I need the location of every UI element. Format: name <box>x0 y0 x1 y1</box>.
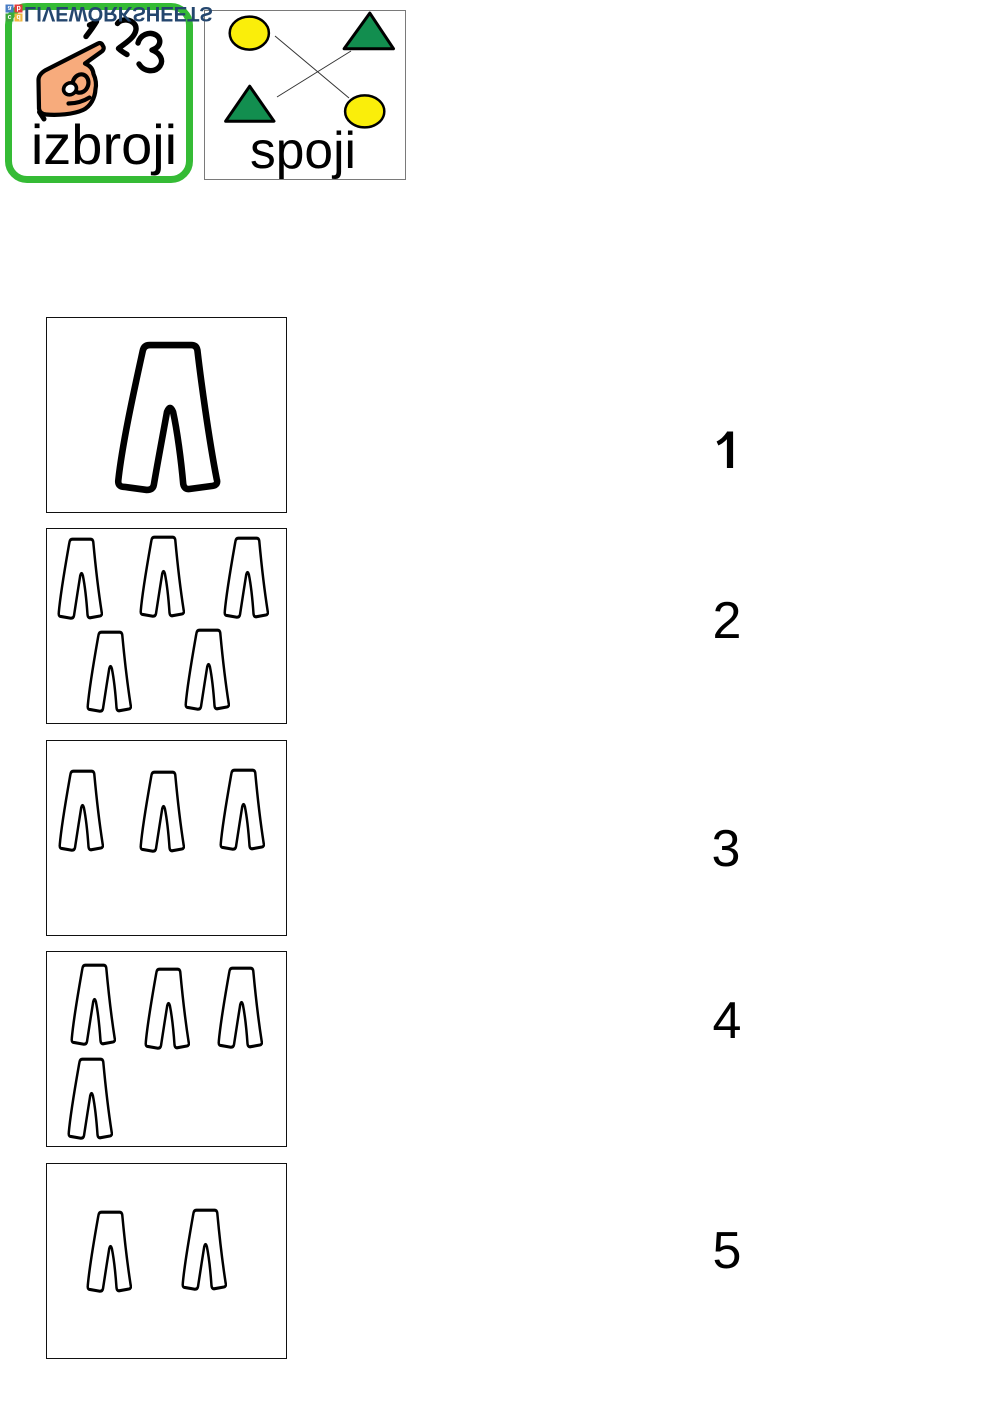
svg-text:a: a <box>8 4 12 11</box>
svg-text:d: d <box>16 13 20 20</box>
svg-text:c: c <box>8 13 12 20</box>
svg-text:b: b <box>16 4 20 11</box>
